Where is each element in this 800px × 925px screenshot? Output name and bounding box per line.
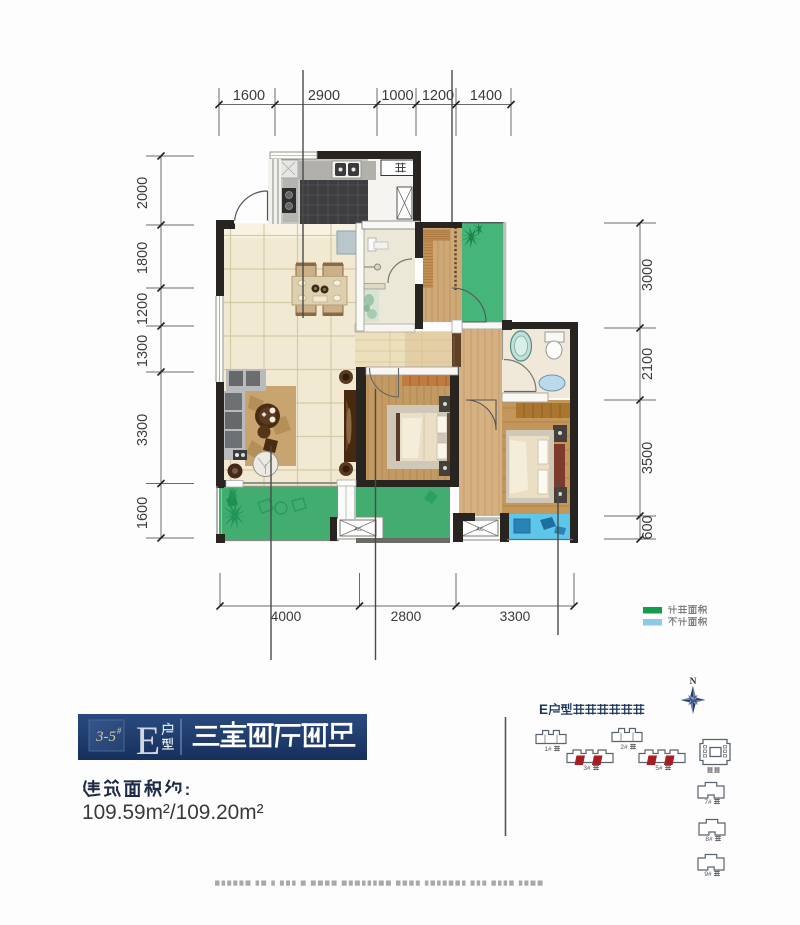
svg-text:1800: 1800 <box>135 242 151 274</box>
svg-text:3300: 3300 <box>500 609 531 624</box>
svg-text:5#: 5# <box>655 765 663 772</box>
svg-text:1400: 1400 <box>470 88 502 104</box>
svg-text:9#: 9# <box>704 871 712 878</box>
svg-text:7#: 7# <box>704 799 712 806</box>
svg-text:3-5: 3-5 <box>95 729 116 745</box>
svg-text:2000: 2000 <box>135 177 151 209</box>
svg-text::: : <box>185 780 191 799</box>
svg-text:1300: 1300 <box>135 335 151 367</box>
svg-text:1#: 1# <box>544 746 552 753</box>
svg-text:600: 600 <box>640 515 656 539</box>
svg-text:2900: 2900 <box>308 88 340 104</box>
svg-text:4000: 4000 <box>271 609 302 624</box>
svg-text:2#: 2# <box>620 744 628 751</box>
svg-text:1600: 1600 <box>135 497 151 529</box>
svg-text:3#: 3# <box>583 765 591 772</box>
svg-text:AC: AC <box>477 527 484 533</box>
svg-text:3300: 3300 <box>135 414 151 446</box>
svg-text:E: E <box>136 718 160 763</box>
svg-text:1200: 1200 <box>422 88 454 104</box>
svg-text:8#: 8# <box>705 836 713 843</box>
svg-text:3000: 3000 <box>640 259 656 291</box>
svg-text:2800: 2800 <box>391 609 422 624</box>
svg-text:3500: 3500 <box>640 442 656 474</box>
svg-text:1000: 1000 <box>381 88 413 104</box>
svg-text:E: E <box>539 702 548 717</box>
svg-text:AC: AC <box>355 527 362 533</box>
svg-text:1200: 1200 <box>135 293 151 325</box>
svg-text:2100: 2100 <box>640 348 656 380</box>
svg-text:#: # <box>117 726 122 736</box>
svg-text:109.59m²/109.20m²: 109.59m²/109.20m² <box>82 801 264 824</box>
svg-text:N: N <box>690 677 697 687</box>
svg-text:1600: 1600 <box>233 88 265 104</box>
